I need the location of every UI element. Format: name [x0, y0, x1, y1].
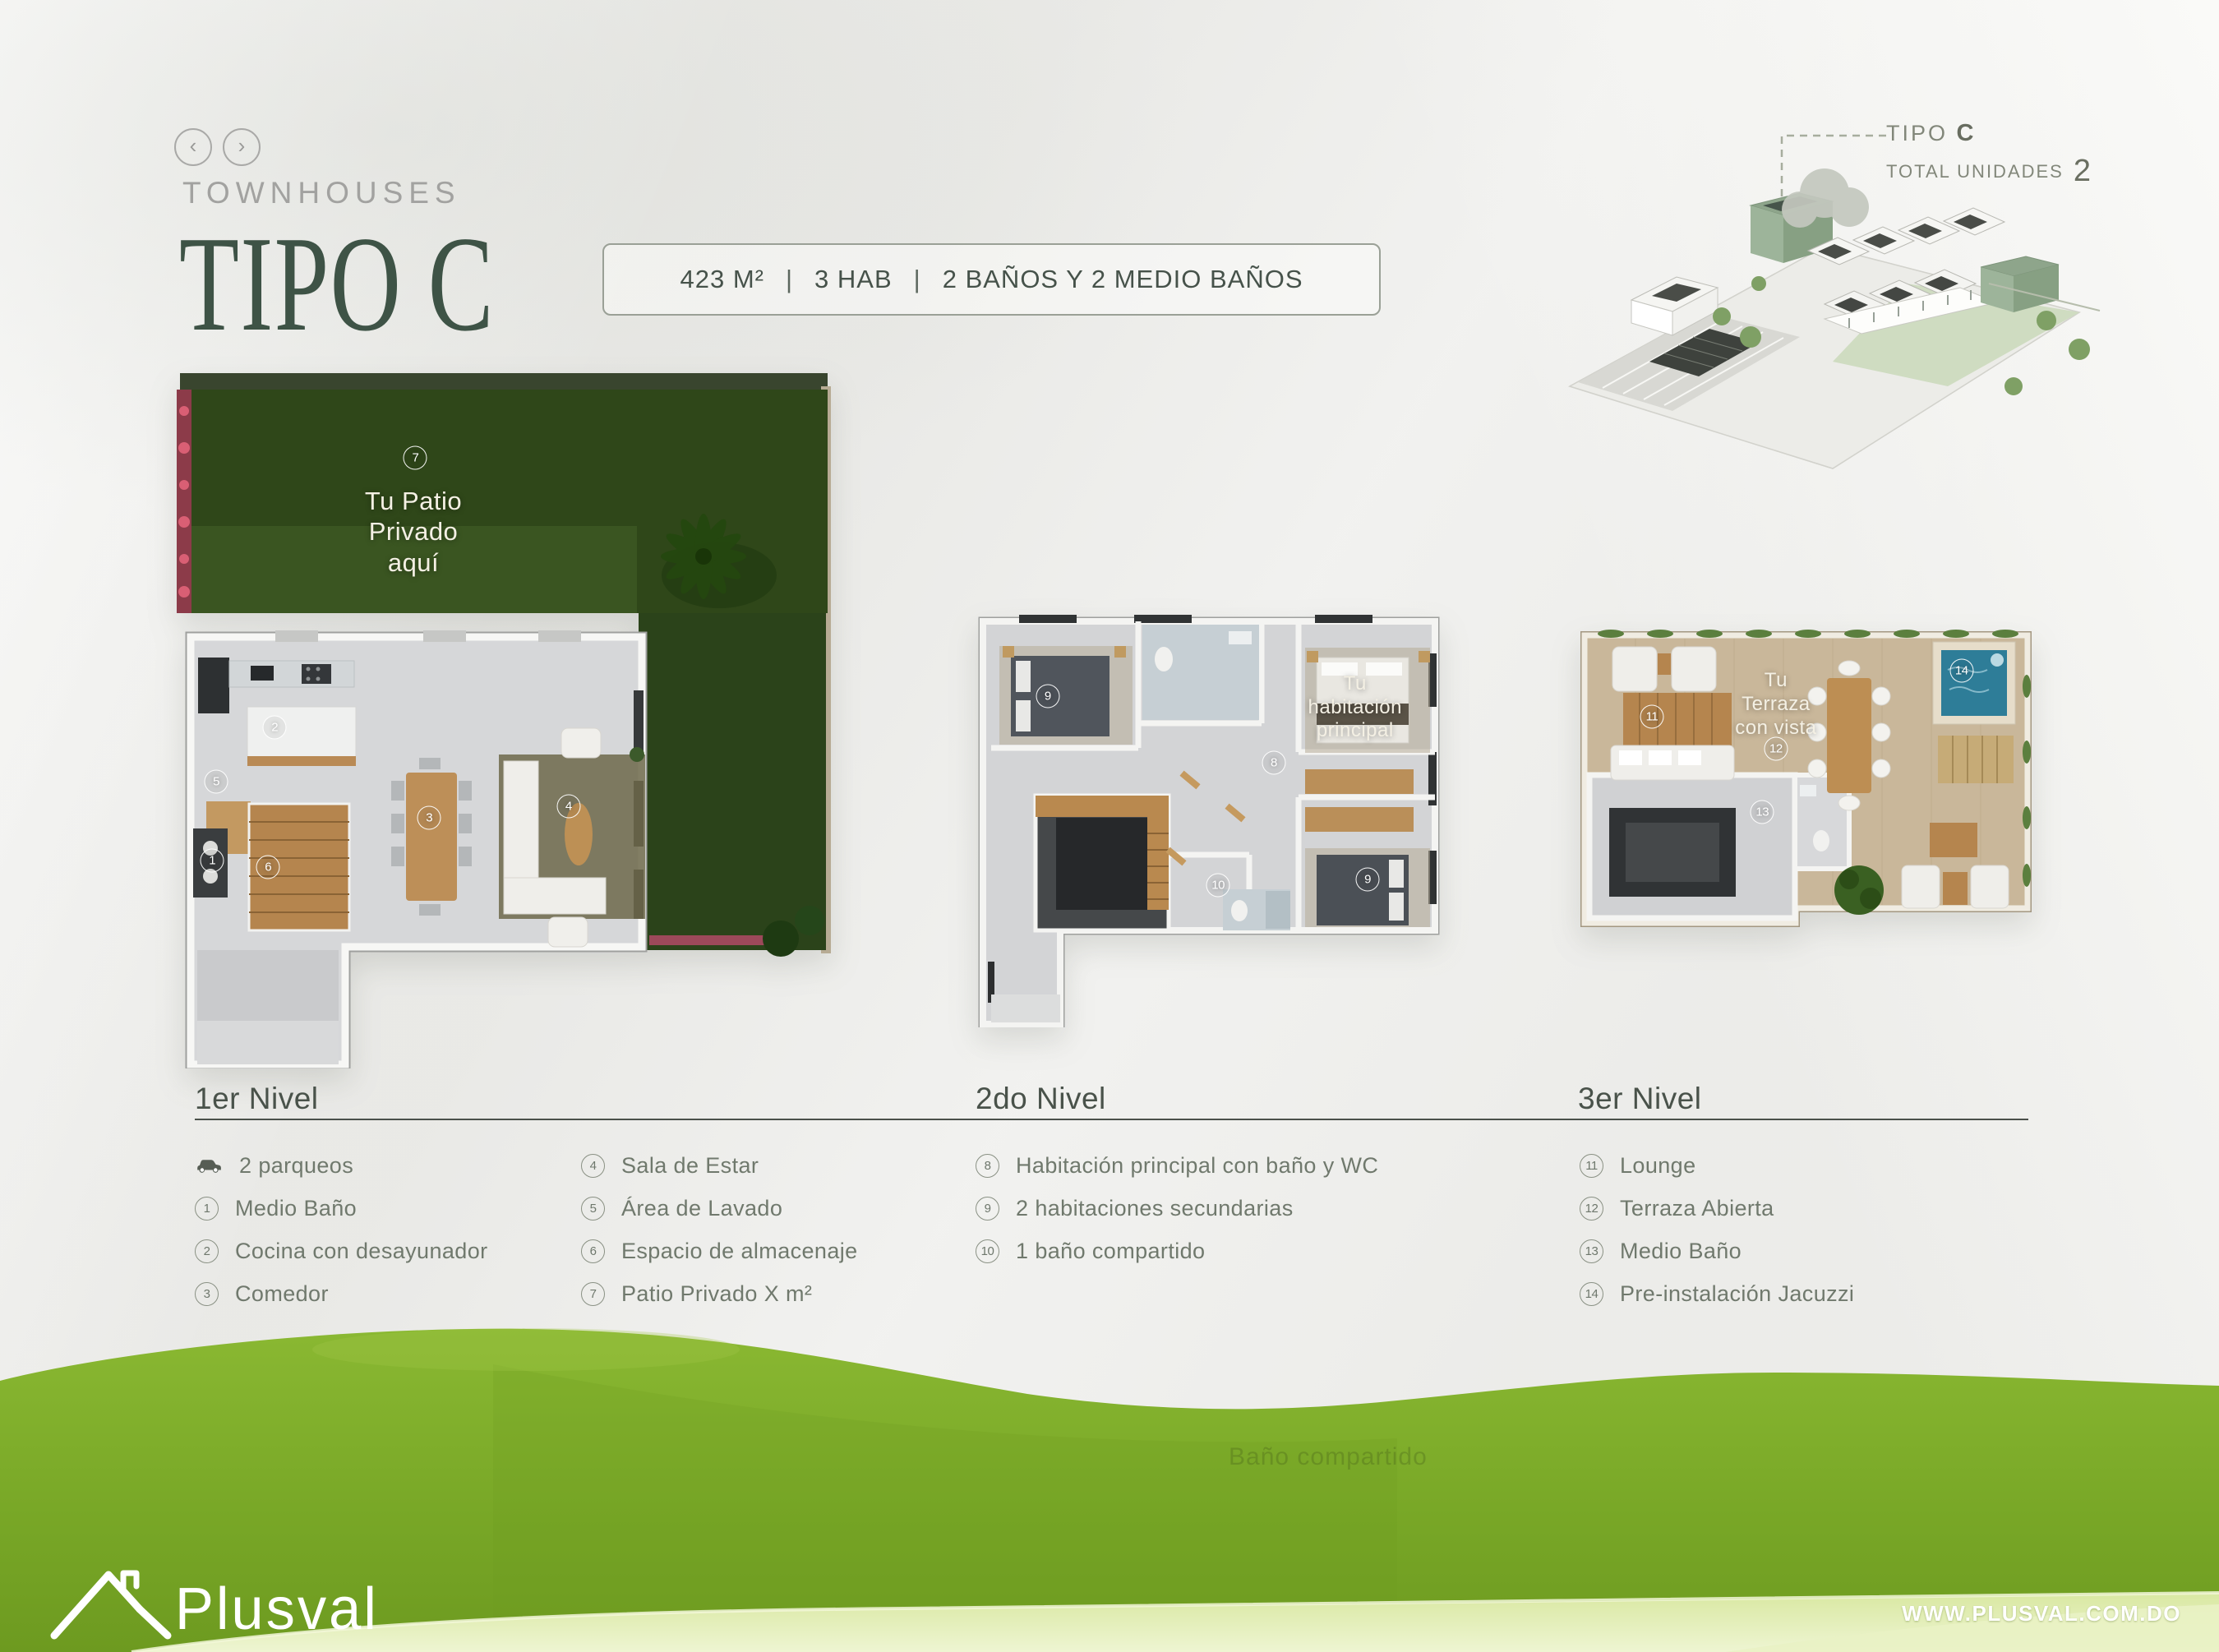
legend-label: Espacio de almacenaje: [621, 1239, 858, 1264]
floorplan-level-2: Tu habitación principal 98109: [978, 608, 1442, 1027]
legend-divider: [195, 1119, 2028, 1120]
legend-item: 3Comedor: [195, 1272, 488, 1315]
legend-item: 13Medio Baño: [1580, 1230, 1854, 1272]
page-title: TIPO C: [179, 215, 495, 352]
legend-level1-col1: 2 parqueos1Medio Baño2Cocina con desayun…: [195, 1144, 488, 1315]
legend-label: Medio Baño: [1620, 1239, 1742, 1264]
legend-item: 1Medio Baño: [195, 1187, 488, 1230]
spec-bedrooms: 3 HAB: [814, 265, 893, 294]
legend-marker: 9: [976, 1197, 999, 1221]
legend-item: 14Pre-instalación Jacuzzi: [1580, 1272, 1854, 1315]
legend-label: Terraza Abierta: [1620, 1196, 1774, 1221]
legend-label: 2 habitaciones secundarias: [1016, 1196, 1294, 1221]
legend-label: Área de Lavado: [621, 1196, 782, 1221]
legend-item: 7Patio Privado X m²: [581, 1272, 858, 1315]
legend-marker: 4: [581, 1154, 605, 1178]
legend-marker: [195, 1156, 223, 1175]
plan-marker: 7: [404, 446, 427, 470]
chevron-left-icon: ‹: [190, 135, 197, 156]
plan-marker: 14: [1949, 658, 1973, 682]
building-isometric-render: [1553, 115, 2129, 501]
legend-marker: 5: [581, 1197, 605, 1221]
chevron-right-icon: ›: [238, 135, 246, 156]
legend-label: Patio Privado X m²: [621, 1281, 812, 1307]
spec-bathrooms: 2 BAÑOS Y 2 MEDIO BAÑOS: [943, 265, 1303, 294]
legend-label: Pre-instalación Jacuzzi: [1620, 1281, 1854, 1307]
next-button[interactable]: ›: [223, 128, 261, 166]
floorplan-level-2-graphic: [978, 608, 1442, 1027]
plan-marker: 3: [418, 805, 441, 829]
legend-item: 5Área de Lavado: [581, 1187, 858, 1230]
plan-marker: 13: [1751, 800, 1774, 824]
legend-marker: 3: [195, 1282, 219, 1306]
carousel-nav: ‹ ›: [174, 128, 261, 166]
legend-label: Medio Baño: [235, 1196, 357, 1221]
legend-label: 2 parqueos: [239, 1153, 353, 1179]
legend-marker: 13: [1580, 1239, 1603, 1263]
legend-marker: 6: [581, 1239, 605, 1263]
plan-marker: 5: [205, 769, 228, 793]
brochure-page: ‹ › TOWNHOUSES TIPO C 423 M² | 3 HAB | 2…: [0, 0, 2219, 1652]
plan-overlay-label: Tu Terraza con vista: [1735, 669, 1816, 740]
legend-marker: 11: [1580, 1154, 1603, 1178]
plan-marker: 9: [1356, 867, 1380, 891]
legend-item: 101 baño compartido: [976, 1230, 1378, 1272]
legend-level3-col1: 11Lounge12Terraza Abierta13Medio Baño14P…: [1580, 1144, 1854, 1315]
legend-label: 1 baño compartido: [1016, 1239, 1205, 1264]
spec-separator: |: [786, 265, 793, 294]
legend-item: 11Lounge: [1580, 1144, 1854, 1187]
spec-area: 423 M²: [680, 265, 764, 294]
plan-overlay-label: Tu habitación principal: [1308, 672, 1402, 743]
plan-marker: 8: [1262, 751, 1285, 775]
website-link[interactable]: WWW.PLUSVAL.COM.DO: [1902, 1601, 2181, 1627]
legend-marker: 14: [1580, 1282, 1603, 1306]
legend-item: 8Habitación principal con baño y WC: [976, 1144, 1378, 1187]
legend-item: 12Terraza Abierta: [1580, 1187, 1854, 1230]
legend-marker: 10: [976, 1239, 999, 1263]
spec-separator: |: [914, 265, 921, 294]
plan-overlay-label: Tu Patio Privado aquí: [365, 486, 462, 578]
legend-label: Habitación principal con baño y WC: [1016, 1153, 1378, 1179]
legend-item: 6Espacio de almacenaje: [581, 1230, 858, 1272]
plusval-logo-icon: [54, 1573, 168, 1636]
legend-marker: 1: [195, 1197, 219, 1221]
legend-level1-col2: 4Sala de Estar5Área de Lavado6Espacio de…: [581, 1144, 858, 1315]
floorplan-level-1: Tu Patio Privado aquí 7251634: [177, 370, 834, 1068]
legend-item: 2Cocina con desayunador: [195, 1230, 488, 1272]
legend-label: Cocina con desayunador: [235, 1239, 488, 1264]
plan-marker: 11: [1640, 705, 1663, 729]
plusval-logo-text: Plusval: [175, 1576, 376, 1642]
legend-item: 92 habitaciones secundarias: [976, 1187, 1378, 1230]
plan-marker: 6: [256, 856, 280, 879]
heading-level-1: 1er Nivel: [195, 1082, 319, 1116]
category-label: TOWNHOUSES: [182, 176, 461, 210]
heading-level-3: 3er Nivel: [1578, 1082, 1702, 1116]
plan-marker: 4: [556, 795, 580, 819]
legend-level2-col1: 8Habitación principal con baño y WC92 ha…: [976, 1144, 1378, 1272]
ghost-watermark-text: Baño compartido: [1229, 1443, 1428, 1471]
legend-label: Comedor: [235, 1281, 329, 1307]
plan-marker: 12: [1764, 737, 1788, 761]
legend-label: Sala de Estar: [621, 1153, 759, 1179]
car-icon: [195, 1156, 223, 1175]
spec-box: 423 M² | 3 HAB | 2 BAÑOS Y 2 MEDIO BAÑOS: [602, 243, 1381, 316]
plan-marker: 2: [263, 716, 287, 740]
legend-marker: 7: [581, 1282, 605, 1306]
plan-marker: 10: [1206, 874, 1230, 898]
prev-button[interactable]: ‹: [174, 128, 212, 166]
legend-item: 4Sala de Estar: [581, 1144, 858, 1187]
plusval-logo: Plusval: [48, 1563, 376, 1645]
plan-marker: 1: [201, 848, 224, 872]
legend-marker: 12: [1580, 1197, 1603, 1221]
legend-marker: 8: [976, 1154, 999, 1178]
legend-marker: 2: [195, 1239, 219, 1263]
plan-marker: 9: [1036, 685, 1059, 708]
heading-level-2: 2do Nivel: [976, 1082, 1106, 1116]
legend-item: 2 parqueos: [195, 1144, 488, 1187]
legend-label: Lounge: [1620, 1153, 1696, 1179]
floorplan-level-3: Tu Terraza con vista 11121314: [1578, 621, 2034, 941]
